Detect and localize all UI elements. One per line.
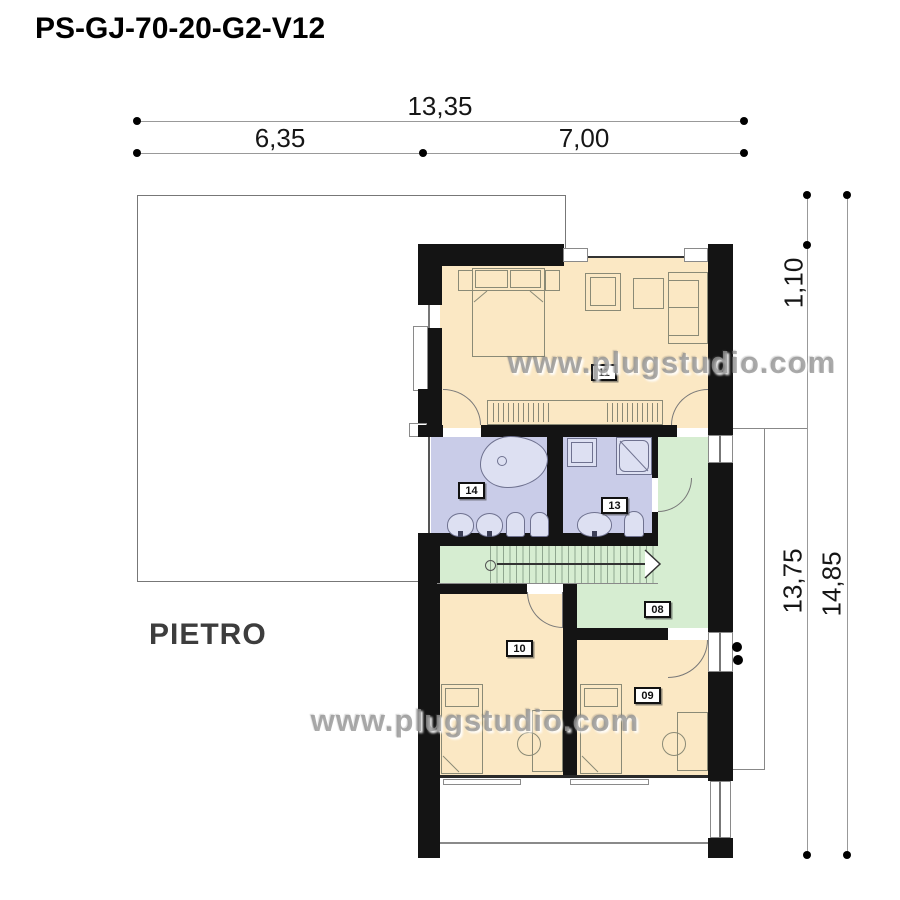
dimension-dot bbox=[803, 851, 811, 859]
room-number-badge: 10 bbox=[506, 640, 533, 657]
window-glazing bbox=[719, 435, 721, 463]
blanket-line bbox=[472, 290, 545, 291]
dimension-dot bbox=[133, 117, 141, 125]
wall-segment bbox=[708, 838, 733, 858]
window-sill bbox=[443, 779, 521, 785]
dim-label-total-height: 14,85 bbox=[817, 551, 848, 616]
knee-wall-line bbox=[428, 428, 430, 535]
drainpipe-dot bbox=[733, 655, 743, 665]
dimension-dot bbox=[740, 149, 748, 157]
dimension-dot bbox=[740, 117, 748, 125]
room-fill-hallway-lower bbox=[577, 583, 708, 628]
toilet bbox=[624, 511, 644, 537]
faucet bbox=[592, 531, 597, 537]
wall-segment bbox=[563, 583, 577, 778]
dim-label-body-height: 13,75 bbox=[778, 548, 809, 613]
room-number-badge: 13 bbox=[601, 497, 628, 514]
shower-tray bbox=[619, 440, 649, 472]
wall-segment bbox=[418, 583, 527, 594]
side-table bbox=[633, 278, 664, 309]
dimension-dot bbox=[419, 149, 427, 157]
window-glazing bbox=[719, 781, 721, 838]
wall-segment bbox=[575, 628, 668, 640]
dimension-dot bbox=[803, 241, 811, 249]
room-number-badge: 09 bbox=[634, 687, 661, 704]
floor-label: PIETRO bbox=[149, 618, 267, 652]
dim-label-total-width: 13,35 bbox=[380, 91, 500, 122]
wall-segment bbox=[547, 425, 563, 546]
staircase-edge bbox=[437, 583, 658, 584]
wall-segment bbox=[418, 425, 443, 437]
room-number-badge: 08 bbox=[644, 601, 671, 618]
wall-segment bbox=[708, 463, 733, 632]
faucet bbox=[487, 531, 492, 537]
wall-segment bbox=[418, 389, 442, 425]
window-glazing bbox=[719, 632, 721, 672]
dim-label-right-width: 7,00 bbox=[534, 123, 634, 154]
roof-outline-right bbox=[733, 428, 807, 429]
roof-outline-right bbox=[733, 769, 765, 770]
chair bbox=[662, 732, 686, 756]
wall-segment bbox=[652, 437, 658, 478]
window-sill bbox=[413, 326, 428, 391]
dimension-dot bbox=[843, 851, 851, 859]
watermark: www.plugstudio.com bbox=[500, 345, 844, 381]
wall-segment bbox=[440, 775, 708, 778]
dimension-dot bbox=[843, 191, 851, 199]
wall-segment bbox=[418, 244, 442, 305]
window-glazing bbox=[428, 305, 430, 328]
bathtub-drain bbox=[497, 456, 507, 466]
dimension-dot bbox=[803, 191, 811, 199]
nightstand bbox=[545, 270, 560, 291]
plan-title: PS-GJ-70-20-G2-V12 bbox=[35, 12, 325, 46]
window-sill bbox=[570, 779, 649, 785]
washing-machine-drum bbox=[571, 442, 593, 463]
dim-label-left-width: 6,35 bbox=[230, 123, 330, 154]
door-leaf bbox=[562, 592, 563, 628]
room-number-badge: 14 bbox=[458, 482, 485, 499]
dimension-dot bbox=[133, 149, 141, 157]
faucet bbox=[458, 531, 463, 537]
dimension-line-split-width bbox=[137, 153, 745, 154]
drainpipe-dot bbox=[732, 642, 742, 652]
window bbox=[563, 248, 588, 262]
wall-segment bbox=[428, 328, 442, 389]
floor-plan-sheet: PS-GJ-70-20-G2-V12 13,35 6,35 7,00 1,10 … bbox=[0, 0, 900, 900]
balcony-railing bbox=[440, 842, 708, 844]
pillow bbox=[475, 270, 508, 288]
stair-direction-line bbox=[497, 563, 647, 565]
roof-outline-right bbox=[764, 428, 765, 770]
armchair-seat bbox=[590, 277, 616, 306]
dimension-line-total-height bbox=[847, 195, 848, 855]
wall-segment bbox=[708, 244, 733, 435]
stair-start-marker bbox=[485, 560, 496, 571]
wardrobe-hangers bbox=[607, 403, 660, 422]
pillow bbox=[510, 270, 541, 288]
toilet bbox=[506, 512, 525, 537]
bidet bbox=[530, 512, 549, 537]
dim-label-offset-height: 1,10 bbox=[779, 258, 810, 309]
sofa-seat bbox=[668, 280, 699, 336]
wall-segment bbox=[708, 672, 733, 781]
wardrobe-hangers bbox=[493, 403, 549, 422]
nightstand bbox=[458, 270, 473, 291]
window bbox=[684, 248, 708, 262]
watermark: www.plugstudio.com bbox=[303, 703, 647, 739]
sofa-cushion-line bbox=[668, 307, 699, 308]
